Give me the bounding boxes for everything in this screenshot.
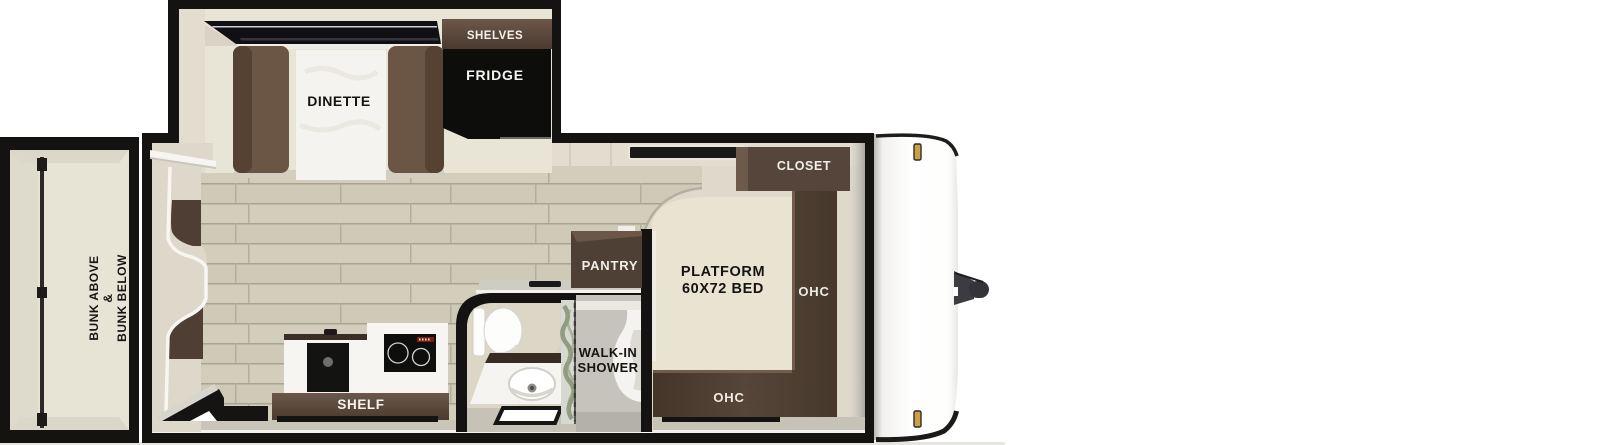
svg-text:DINETTE: DINETTE (307, 93, 370, 109)
svg-text:BUNK BELOW: BUNK BELOW (115, 254, 129, 342)
svg-text:WALK-IN: WALK-IN (579, 345, 637, 360)
svg-text:SHELF: SHELF (337, 397, 384, 412)
svg-text:PLATFORM: PLATFORM (681, 264, 765, 280)
svg-text:SHOWER: SHOWER (578, 360, 639, 375)
svg-text:FRIDGE: FRIDGE (466, 67, 524, 83)
svg-text:&: & (101, 293, 115, 302)
svg-text:OHC: OHC (798, 284, 829, 299)
svg-text:BUNK ABOVE: BUNK ABOVE (87, 255, 101, 340)
svg-text:OHC: OHC (713, 390, 744, 405)
svg-text:PANTRY: PANTRY (582, 258, 639, 273)
svg-text:CLOSET: CLOSET (777, 159, 831, 173)
svg-text:SHELVES: SHELVES (467, 30, 523, 42)
svg-text:60X72 BED: 60X72 BED (682, 281, 764, 297)
